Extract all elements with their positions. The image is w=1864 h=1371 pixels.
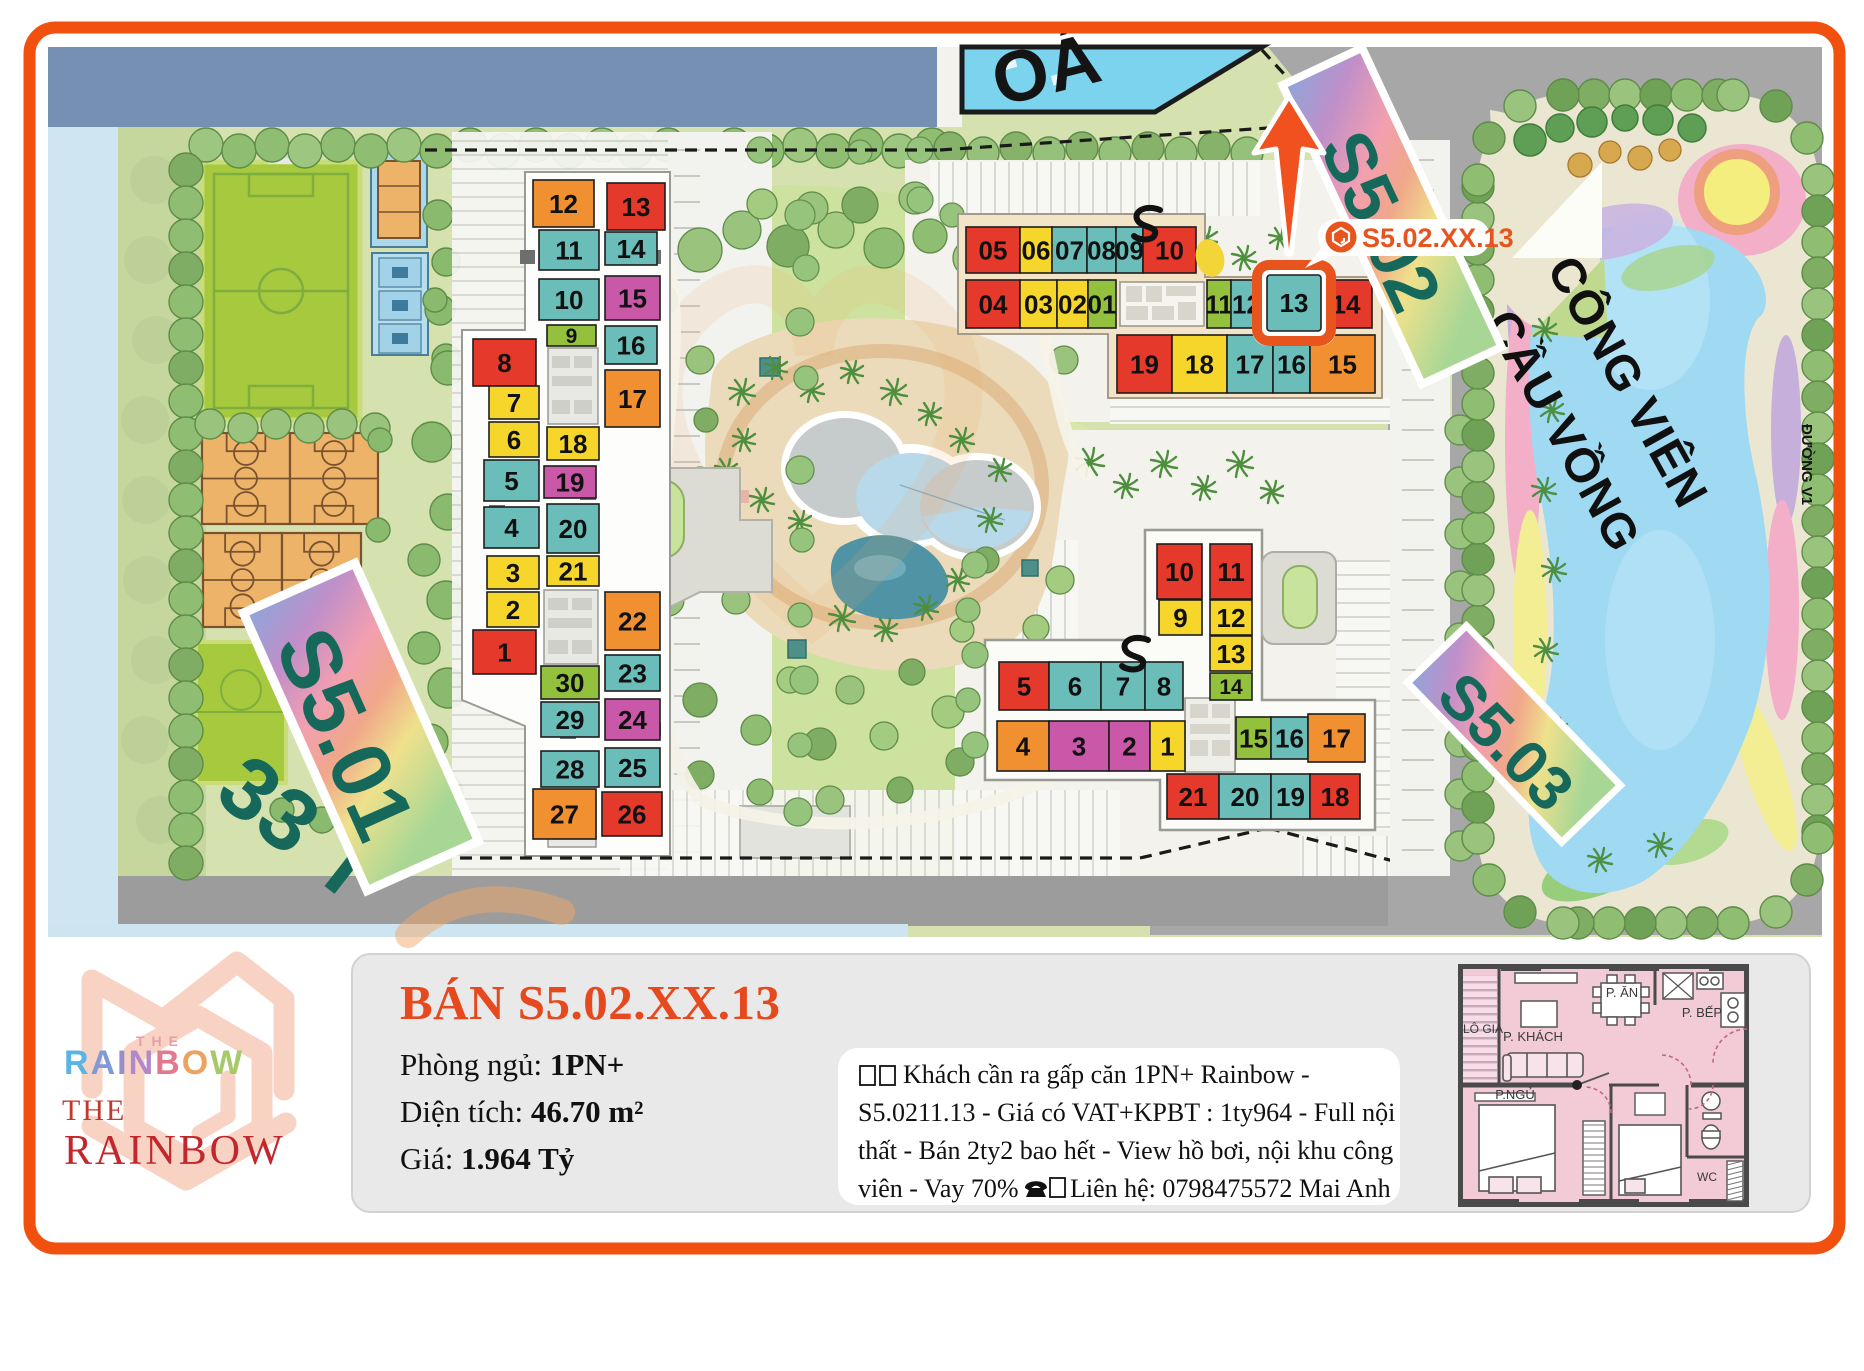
svg-text:20: 20 <box>1231 782 1260 812</box>
svg-text:1: 1 <box>1160 731 1174 761</box>
svg-text:14: 14 <box>617 234 646 264</box>
svg-text:02: 02 <box>1058 289 1087 319</box>
svg-text:ĐƯỜNG V1: ĐƯỜNG V1 <box>1798 424 1816 505</box>
svg-text:RAINBOW: RAINBOW <box>64 1044 244 1082</box>
svg-text:viên - Vay 70%: viên - Vay 70% <box>858 1174 1019 1203</box>
svg-text:9: 9 <box>566 325 578 348</box>
svg-text:WC: WC <box>1697 1170 1717 1184</box>
svg-text:4: 4 <box>1016 731 1031 761</box>
svg-text:18: 18 <box>1185 349 1214 379</box>
svg-text:P. KHÁCH: P. KHÁCH <box>1503 1029 1563 1044</box>
svg-text:19: 19 <box>1130 349 1159 379</box>
svg-text:P. BẾP: P. BẾP <box>1682 1005 1722 1020</box>
svg-text:06: 06 <box>1022 235 1051 265</box>
svg-text:15: 15 <box>1239 723 1268 753</box>
svg-text:20: 20 <box>559 514 588 544</box>
svg-text:05: 05 <box>979 235 1008 265</box>
svg-text:19: 19 <box>556 467 585 497</box>
svg-text:11: 11 <box>1205 289 1233 319</box>
svg-text:5: 5 <box>504 466 518 496</box>
svg-text:12: 12 <box>1217 603 1246 633</box>
svg-text:15: 15 <box>1328 349 1357 379</box>
svg-text:6: 6 <box>507 425 521 455</box>
svg-text:17: 17 <box>618 384 647 414</box>
svg-text:10: 10 <box>555 285 584 315</box>
svg-text:7: 7 <box>1116 671 1130 701</box>
svg-text:23: 23 <box>618 658 647 688</box>
svg-text:10: 10 <box>1155 235 1184 265</box>
svg-text:P.NGỦ: P.NGỦ <box>1495 1087 1535 1102</box>
svg-text:16: 16 <box>1277 349 1306 379</box>
svg-text:Phòng ngủ: 1PN+: Phòng ngủ: 1PN+ <box>400 1047 624 1082</box>
svg-text:21: 21 <box>559 556 588 586</box>
svg-text:21: 21 <box>1179 782 1208 812</box>
svg-text:26: 26 <box>618 799 647 829</box>
svg-text:27: 27 <box>550 799 579 829</box>
svg-text:thất - Bán 2ty2 bao hết - View: thất - Bán 2ty2 bao hết - View hồ bơi, n… <box>858 1136 1393 1165</box>
svg-text:10: 10 <box>1165 557 1194 587</box>
svg-text:11: 11 <box>1217 557 1245 587</box>
svg-text:18: 18 <box>1321 782 1350 812</box>
svg-text:Liên hệ: 0798475572 Mai Anh: Liên hệ: 0798475572 Mai Anh <box>1070 1174 1391 1203</box>
svg-text:Giá: 1.964 Tỷ: Giá: 1.964 Tỷ <box>400 1141 575 1176</box>
svg-text:9: 9 <box>1173 603 1187 633</box>
svg-text:S5.02.XX.13: S5.02.XX.13 <box>1362 223 1514 253</box>
svg-text:3: 3 <box>506 558 520 588</box>
svg-text:Diện tích: 46.70 m²: Diện tích: 46.70 m² <box>400 1094 643 1129</box>
svg-text:3: 3 <box>1072 731 1086 761</box>
svg-text:08: 08 <box>1087 235 1116 265</box>
svg-text:11: 11 <box>555 235 583 265</box>
svg-text:2: 2 <box>506 595 520 625</box>
svg-text:4: 4 <box>504 513 519 543</box>
svg-text:Khách cần ra gấp căn 1PN+ Rain: Khách cần ra gấp căn 1PN+ Rainbow - <box>903 1060 1310 1089</box>
svg-text:13: 13 <box>1280 288 1309 318</box>
svg-text:16: 16 <box>1275 723 1304 753</box>
svg-text:7: 7 <box>507 388 521 418</box>
svg-text:17: 17 <box>1236 349 1265 379</box>
svg-text:16: 16 <box>617 330 646 360</box>
svg-text:1: 1 <box>497 637 511 667</box>
svg-text:04: 04 <box>979 289 1008 319</box>
svg-text:8: 8 <box>497 348 511 378</box>
svg-text:15: 15 <box>618 283 647 313</box>
svg-text:5: 5 <box>1017 671 1031 701</box>
svg-text:12: 12 <box>549 189 578 219</box>
svg-text:14: 14 <box>1219 676 1243 699</box>
svg-text:19: 19 <box>1276 782 1305 812</box>
svg-text:17: 17 <box>1322 723 1351 753</box>
svg-text:THE: THE <box>62 1094 126 1127</box>
svg-text:LÔ GIA: LÔ GIA <box>1463 1021 1503 1036</box>
svg-text:03: 03 <box>1024 289 1053 319</box>
svg-text:2: 2 <box>1122 731 1136 761</box>
svg-text:01: 01 <box>1088 289 1117 319</box>
svg-text:13: 13 <box>622 192 651 222</box>
svg-text:07: 07 <box>1055 235 1084 265</box>
svg-text:8: 8 <box>1157 671 1171 701</box>
svg-text:BÁN S5.02.XX.13: BÁN S5.02.XX.13 <box>400 975 780 1030</box>
svg-text:18: 18 <box>559 429 588 459</box>
svg-text:24: 24 <box>618 705 647 735</box>
svg-text:S5.0211.13 - Giá có VAT+KPBT :: S5.0211.13 - Giá có VAT+KPBT : 1ty964 - … <box>858 1098 1395 1127</box>
svg-text:29: 29 <box>556 705 585 735</box>
svg-text:30: 30 <box>556 668 585 698</box>
svg-text:28: 28 <box>556 754 585 784</box>
svg-text:25: 25 <box>618 753 647 783</box>
svg-text:13: 13 <box>1217 639 1246 669</box>
svg-text:P. ĂN: P. ĂN <box>1606 985 1638 1000</box>
svg-text:6: 6 <box>1068 671 1082 701</box>
svg-text:22: 22 <box>618 606 647 636</box>
svg-text:RAINBOW: RAINBOW <box>64 1128 286 1174</box>
